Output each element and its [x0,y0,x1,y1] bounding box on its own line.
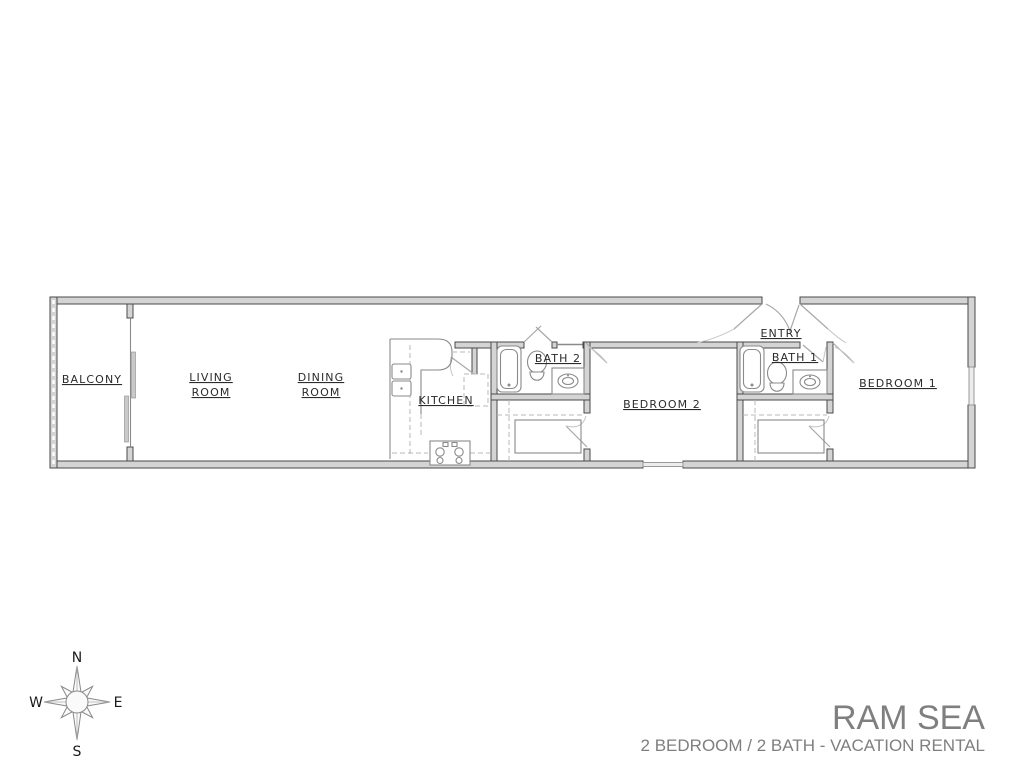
page: BALCONY LIVING ROOM DINING ROOM KITCHEN … [0,0,1024,768]
compass-west-label: W [29,695,43,711]
room-label-dining-1: DINING [298,371,345,384]
stove [430,441,470,465]
bedroom1-door [833,343,854,363]
bath2-door [524,326,552,342]
bathtub-1 [740,346,764,392]
toilet-1 [768,362,787,391]
compass-north-label: N [72,650,82,666]
room-label-living-1: LIVING [189,371,233,384]
pantry-door [450,357,474,376]
room-label-balcony: BALCONY [62,373,122,386]
compass-east-label: E [114,695,123,711]
sliding-door [125,318,136,447]
sink-2 [552,368,584,394]
plan-title: RAM SEA [832,699,985,737]
window-bedroom1-east [969,367,974,405]
interior-walls [127,304,833,461]
entry-swing-left [696,304,762,343]
room-label-bedroom1: BEDROOM 1 [859,377,937,390]
plan-subtitle: 2 BEDROOM / 2 BATH - VACATION RENTAL [641,736,985,755]
compass-rose-icon [44,666,110,740]
room-label-living-2: ROOM [192,386,231,399]
sink-1 [793,370,827,394]
closet1-door [809,416,830,447]
room-label-bath1: BATH 1 [772,351,818,364]
closet-1 [743,400,827,461]
room-label-bedroom2: BEDROOM 2 [623,398,701,411]
kitchen-sink [392,364,411,396]
entry-swing-right [800,304,846,343]
room-label-dining-2: ROOM [302,386,341,399]
closet2-door [566,416,587,447]
room-label-bath2: BATH 2 [535,352,581,365]
room-label-kitchen: KITCHEN [418,394,473,407]
window-bedroom2-south [643,463,683,467]
balcony-railing [50,297,57,468]
bathtub-2 [497,346,521,392]
floor-plan-canvas: BALCONY LIVING ROOM DINING ROOM KITCHEN … [0,0,1024,768]
room-label-entry: ENTRY [760,327,801,340]
compass-south-label: S [73,744,82,760]
